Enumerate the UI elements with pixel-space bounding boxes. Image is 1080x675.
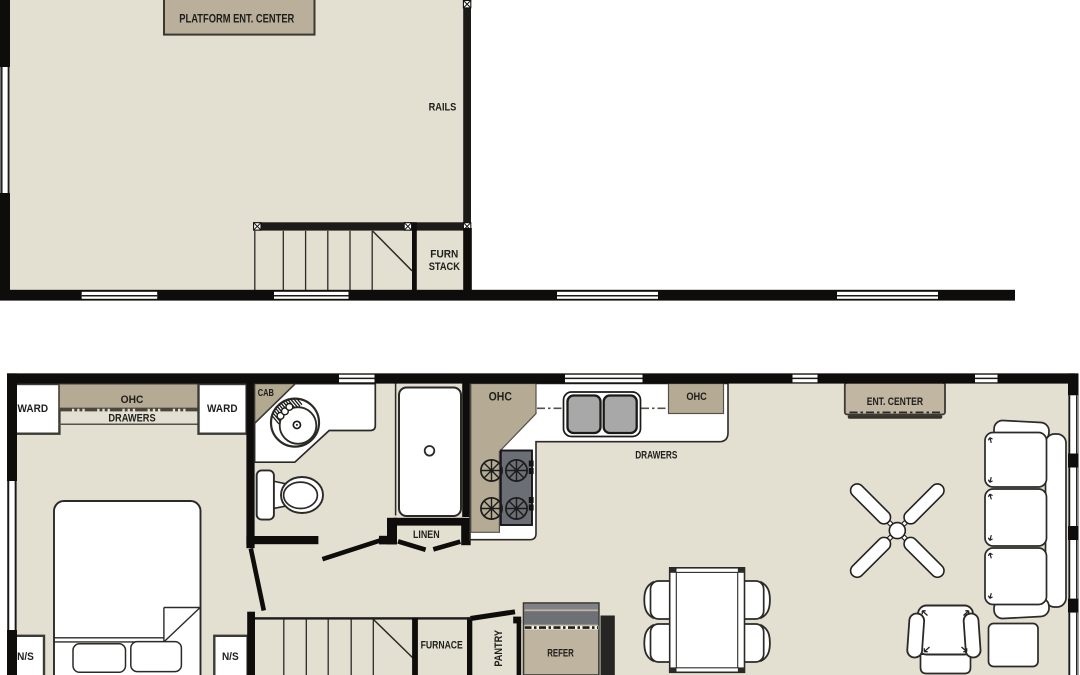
svg-text:ENT. CENTER: ENT. CENTER [867, 396, 923, 408]
svg-text:FURN: FURN [430, 249, 458, 261]
svg-text:N/S: N/S [17, 651, 34, 663]
svg-text:FURNACE: FURNACE [421, 639, 464, 651]
svg-text:OHC: OHC [489, 391, 513, 404]
svg-text:DRAWERS: DRAWERS [635, 449, 677, 461]
svg-text:WARD: WARD [18, 403, 49, 415]
svg-text:REFER: REFER [547, 648, 574, 660]
svg-text:STACK: STACK [429, 261, 460, 273]
svg-text:OHC: OHC [121, 394, 144, 406]
svg-text:WARD: WARD [207, 403, 238, 415]
svg-text:PLATFORM ENT. CENTER: PLATFORM ENT. CENTER [179, 13, 294, 26]
svg-text:N/S: N/S [222, 651, 239, 663]
svg-text:OHC: OHC [686, 391, 707, 403]
svg-text:PANTRY: PANTRY [493, 630, 505, 667]
svg-text:LINEN: LINEN [413, 529, 440, 541]
svg-text:RAILS: RAILS [429, 102, 457, 114]
svg-text:CAB: CAB [258, 388, 275, 399]
svg-text:DRAWERS: DRAWERS [108, 413, 156, 425]
